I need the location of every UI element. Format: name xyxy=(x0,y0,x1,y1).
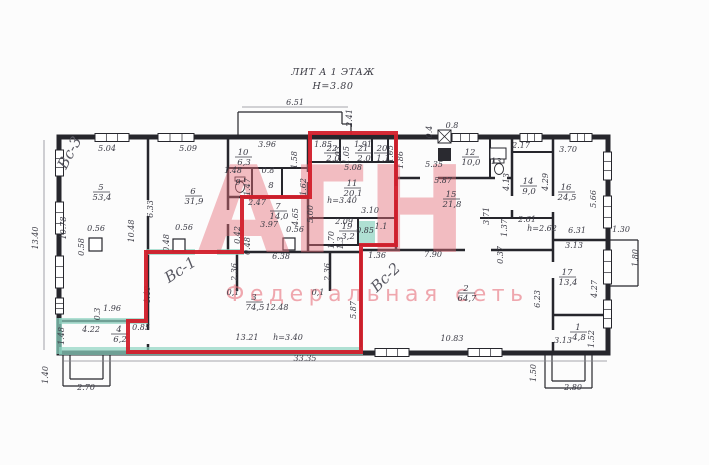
dim-label: 4.65 xyxy=(291,208,300,227)
dim-label: 1.40 xyxy=(41,366,50,384)
room-number: 17 xyxy=(562,268,573,278)
room-number: 22 xyxy=(326,144,338,154)
dim-label: 1.52 xyxy=(587,330,596,348)
dim-label: 6.33 xyxy=(146,200,155,218)
dim-label: 2.36 xyxy=(323,263,332,282)
dim-label: 2.41 xyxy=(345,109,354,128)
dim-label: 1.50 xyxy=(529,364,538,382)
dim-label: 0.56 xyxy=(87,224,105,233)
dim-label: 13.21 xyxy=(236,333,259,342)
dim-label: 1.96 xyxy=(103,304,121,313)
window xyxy=(604,250,612,284)
dim-label: 10.78 xyxy=(59,217,68,240)
room-area: 13,4 xyxy=(559,278,578,288)
dim-label: 4.27 xyxy=(590,279,599,299)
dim-label: 3.70 xyxy=(559,145,577,154)
door-opening xyxy=(550,262,556,278)
room-number: 15 xyxy=(446,190,457,200)
room-area: 2,0 xyxy=(325,154,340,164)
dim-label: 0.56 xyxy=(175,223,193,232)
dim-label: 1.36 xyxy=(368,251,386,260)
room-area: 24,5 xyxy=(557,193,577,203)
dim-label: 0.37 xyxy=(496,245,505,264)
window xyxy=(56,298,64,314)
door-opening xyxy=(550,196,556,212)
room-area: 2,0 xyxy=(356,154,371,164)
room-area: 1,1 xyxy=(376,154,390,164)
dim-label: 2.36 xyxy=(230,263,239,282)
dim-label: 13.40 xyxy=(31,227,40,250)
dim-label: 0,1 xyxy=(227,288,240,297)
window xyxy=(570,134,592,142)
dim-label: 0.85 xyxy=(356,226,374,235)
dim-label: 0.48 xyxy=(243,237,252,255)
room-area: 20,1 xyxy=(343,189,363,199)
window xyxy=(452,134,478,142)
column xyxy=(173,239,185,251)
room-number: 14 xyxy=(523,177,534,187)
dim-label: 0.85 xyxy=(132,323,150,332)
door-opening xyxy=(465,247,491,253)
room-number: 12 xyxy=(465,148,476,158)
room-area: 31,9 xyxy=(185,197,205,207)
room-number: 11 xyxy=(347,179,358,189)
dim-label: h=2.62 xyxy=(527,224,557,233)
dim-label: 5.66 xyxy=(589,190,598,208)
dim-label: 10.83 xyxy=(441,334,464,343)
room-area: 6,3 xyxy=(237,158,251,168)
dim-label: 1.62 xyxy=(299,178,308,196)
dim-label: 2.47 xyxy=(247,198,267,207)
dim-label: 6.38 xyxy=(272,252,290,261)
room-number: 5 xyxy=(98,183,103,193)
dim-label: 0.8 xyxy=(262,166,275,175)
dim-label: 1.37 xyxy=(500,218,509,237)
window xyxy=(375,349,409,357)
dim-label: 4.29 xyxy=(541,173,550,192)
dim-label: 3.71 xyxy=(482,207,491,225)
dim-label: 5.08 xyxy=(344,163,362,172)
dim-label: 1.30 xyxy=(612,225,630,234)
room-area: 3,2 xyxy=(341,232,355,242)
room-area: 64,7 xyxy=(458,294,478,304)
dim-label: 5.87 xyxy=(434,176,453,185)
window xyxy=(468,349,502,357)
dim-label: 2.70 xyxy=(76,383,95,392)
floorplan-drawing: АГНФедеральная сеть 6.512.415.045.093.96… xyxy=(0,0,709,465)
dim-label: 3.13 xyxy=(565,241,583,250)
room-number: 1 xyxy=(575,323,580,333)
dim-label: 7.90 xyxy=(424,250,442,259)
dim-label: 5.35 xyxy=(425,160,443,169)
room-area: 4,8 xyxy=(571,333,586,343)
window xyxy=(56,256,64,288)
window xyxy=(604,300,612,328)
dim-label: 1.1 xyxy=(375,222,388,231)
room-number: 21 xyxy=(357,144,369,154)
window xyxy=(158,134,194,142)
dim-label: 1.70 xyxy=(327,231,336,249)
dim-label: 5.04 xyxy=(98,144,116,153)
room-area: 53,4 xyxy=(93,193,112,203)
room-number: 16 xyxy=(561,183,572,193)
dim-label: 1.58 xyxy=(290,151,299,169)
room-number: 20 xyxy=(376,144,388,154)
dim-label: 1.47 xyxy=(243,177,252,196)
room-area: 14,0 xyxy=(270,212,290,222)
dim-label: 3.13 xyxy=(554,336,572,345)
column xyxy=(89,238,102,251)
dim-label: 12.48 xyxy=(266,303,289,312)
dim-label: 4.22 xyxy=(81,325,100,334)
room-number: 19 xyxy=(342,222,353,232)
dim-label: h=3.40 xyxy=(273,333,303,342)
room-number: 7 xyxy=(275,202,281,212)
dim-label: 2.17 xyxy=(511,141,531,150)
dim-label: 4.13 xyxy=(502,173,511,192)
room-area: 10,0 xyxy=(462,158,482,168)
door-opening xyxy=(145,330,151,344)
dim-label: 0.4 xyxy=(425,126,434,139)
dim-label: 3.10 xyxy=(361,206,379,215)
room-number: 6 xyxy=(190,187,196,197)
dim-label: 6.31 xyxy=(568,226,586,235)
room-area: 21,8 xyxy=(442,200,463,210)
door-opening xyxy=(509,196,515,210)
dim-label: 1.05 xyxy=(342,146,351,164)
dim-label: 6.51 xyxy=(286,98,304,107)
dim-label: 0.48 xyxy=(162,234,171,252)
dim-label: 0.58 xyxy=(77,238,86,256)
room-number: 3 xyxy=(251,293,256,303)
dim-label: 0.3 xyxy=(93,308,102,321)
dim-label: 1.80 xyxy=(631,249,640,267)
floorplan-page: ЛИТ А 1 ЭТАЖ Н=3.80 АГНФедеральная сеть … xyxy=(0,0,709,465)
dim-label: 0.8 xyxy=(446,121,459,130)
window xyxy=(604,196,612,228)
dim-label: 2.61 xyxy=(517,215,536,224)
room-area: 6,2 xyxy=(113,335,127,345)
room-number: 2 xyxy=(462,284,468,294)
room-number: 9 xyxy=(235,178,241,188)
dim-label: 5.00 xyxy=(306,205,315,223)
dim-label: 33.35 xyxy=(294,354,317,363)
dim-label: 2.80 xyxy=(563,383,582,392)
room-area: 74,5 xyxy=(246,303,265,313)
dim-label: 3.96 xyxy=(258,140,276,149)
room-number: 8 xyxy=(268,181,274,191)
window xyxy=(604,152,612,180)
room-number: 13 xyxy=(491,157,502,167)
dim-label: 1.48 xyxy=(57,327,66,345)
dim-label: 5.87 xyxy=(349,300,358,319)
room-number: 4 xyxy=(115,325,121,335)
handwritten-note: Вс-1 xyxy=(160,253,199,287)
room-number: 10 xyxy=(238,148,249,158)
dim-label: 5.09 xyxy=(179,144,197,153)
dim-label: 6.23 xyxy=(533,290,542,308)
dim-label: 0,1 xyxy=(312,288,325,297)
dim-label: 10.48 xyxy=(127,220,136,243)
room-area: 9,0 xyxy=(522,187,536,197)
window xyxy=(95,134,129,142)
